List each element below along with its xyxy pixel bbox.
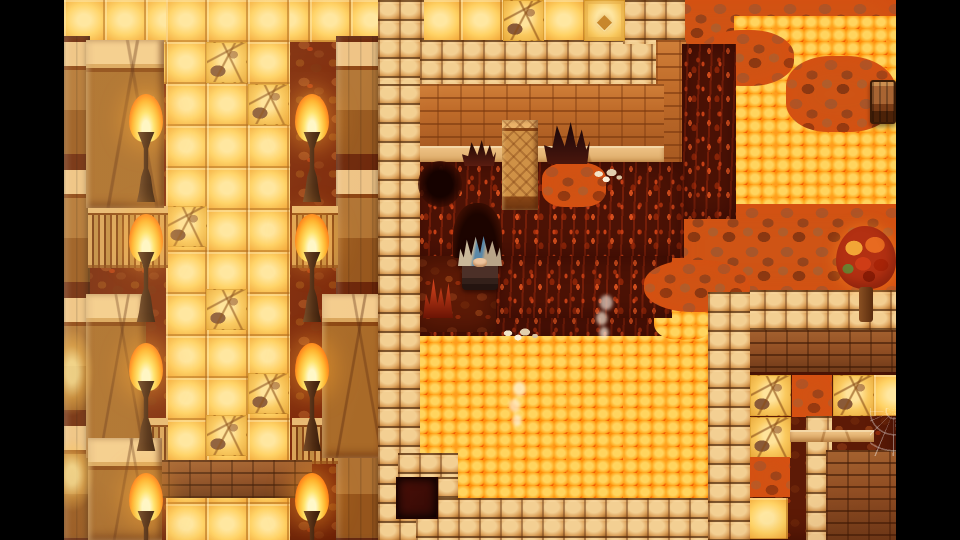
room-rock-patch-1 bbox=[792, 375, 832, 417]
ledge-top-b bbox=[420, 40, 656, 86]
torch-3 bbox=[128, 214, 164, 322]
torch-4 bbox=[294, 214, 330, 322]
stair-pit[interactable] bbox=[396, 477, 438, 519]
wall-column-right bbox=[336, 36, 380, 540]
cracked-tile-6 bbox=[206, 415, 247, 456]
spider-web bbox=[870, 408, 896, 456]
torch-8 bbox=[294, 473, 330, 540]
cracked-tile-4 bbox=[206, 289, 247, 330]
ledge-bar-room bbox=[790, 430, 874, 442]
letterbox-left bbox=[0, 0, 64, 540]
mine-cart bbox=[870, 80, 896, 124]
stone-floor-2 bbox=[750, 417, 791, 458]
smoke-wisp-2 bbox=[502, 378, 532, 428]
brick-corner bbox=[826, 450, 896, 540]
vine-wall-column bbox=[682, 44, 736, 219]
ledge-top-a bbox=[378, 0, 424, 86]
sun-carved-tile bbox=[584, 0, 625, 41]
burning-tree bbox=[836, 226, 896, 322]
ledge-bottom-band bbox=[416, 498, 716, 540]
brick-lintel bbox=[744, 330, 896, 372]
smoke-wisp-1 bbox=[590, 292, 618, 340]
carved-pillar bbox=[502, 120, 538, 210]
ledge-step bbox=[398, 453, 458, 478]
brick-wall bbox=[414, 84, 664, 148]
ledge-column-right bbox=[708, 292, 750, 540]
rim-skulls bbox=[494, 326, 544, 342]
letterbox-right bbox=[896, 0, 960, 540]
cracked-tile-3 bbox=[166, 206, 207, 247]
stone-floor-1 bbox=[750, 375, 791, 416]
gold-top-pair bbox=[420, 0, 504, 41]
stone-floor-3 bbox=[833, 375, 874, 416]
room-rock-patch-2 bbox=[750, 457, 790, 497]
room-gold-tile bbox=[747, 498, 788, 539]
player-character[interactable] bbox=[462, 238, 498, 290]
cracked-tile-5 bbox=[248, 373, 289, 414]
cracked-tile-2 bbox=[248, 84, 289, 125]
torch-5 bbox=[128, 343, 164, 451]
bone-pile bbox=[588, 165, 626, 185]
game-stage[interactable] bbox=[0, 0, 960, 540]
torch-2 bbox=[294, 94, 330, 202]
torch-1 bbox=[128, 94, 164, 202]
ledge-top-c bbox=[623, 0, 685, 44]
torch-6 bbox=[294, 343, 330, 451]
torch-7 bbox=[128, 473, 164, 540]
wall-hole bbox=[418, 161, 462, 207]
cracked-tile-1 bbox=[206, 42, 247, 83]
cracked-tile-top bbox=[503, 0, 544, 41]
gold-top-single bbox=[544, 0, 585, 41]
